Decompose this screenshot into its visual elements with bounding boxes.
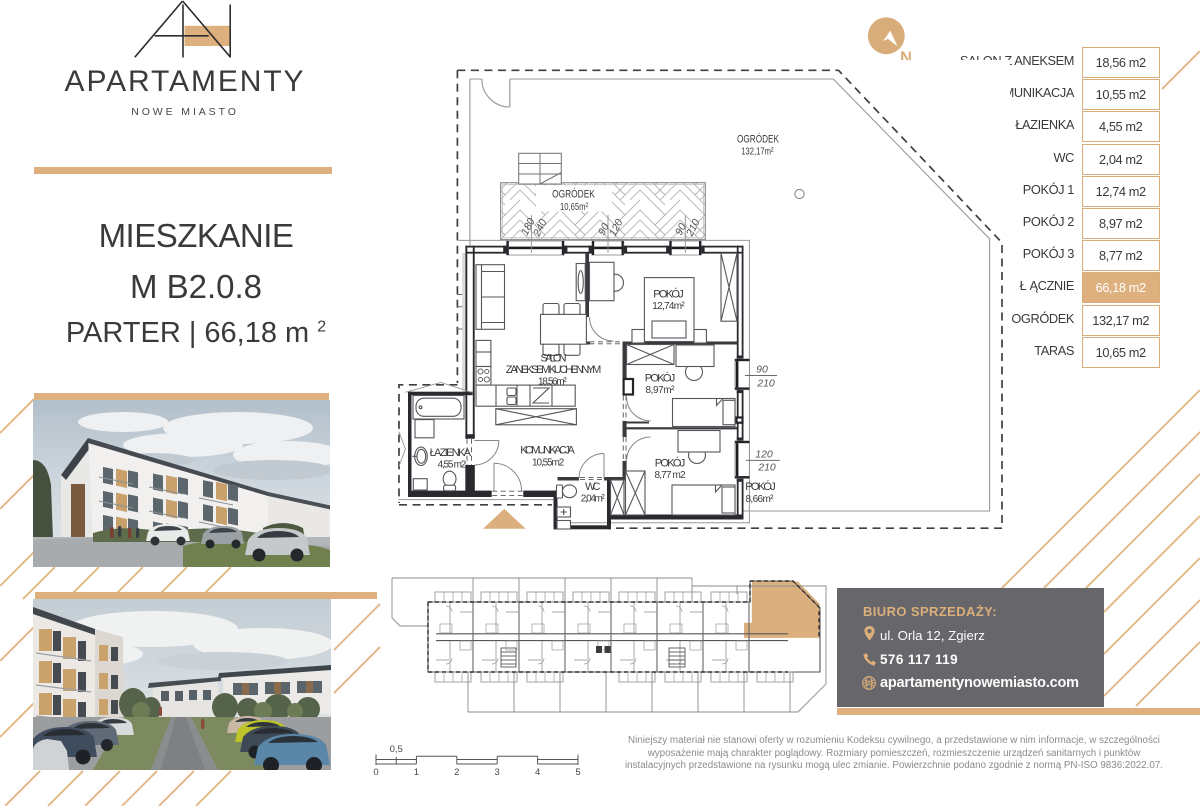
svg-text:3: 3 <box>495 767 500 778</box>
svg-text:10,55m2: 10,55m2 <box>532 458 565 469</box>
svg-text:120: 120 <box>755 449 773 461</box>
svg-text:ŁAZIENKA: ŁAZIENKA <box>430 447 472 459</box>
svg-text:1: 1 <box>414 767 419 778</box>
svg-text:5: 5 <box>575 767 580 778</box>
svg-text:POKÓJ: POKÓJ <box>745 480 776 493</box>
svg-text:0: 0 <box>373 767 378 778</box>
svg-text:210: 210 <box>756 378 775 390</box>
svg-text:10,65m²: 10,65m² <box>560 202 589 213</box>
svg-text:4: 4 <box>535 767 540 778</box>
svg-text:KOMUNIKACJA: KOMUNIKACJA <box>520 445 575 457</box>
svg-text:Z ANEKSEM KUCHENNYM: Z ANEKSEM KUCHENNYM <box>506 364 602 376</box>
svg-text:0,5: 0,5 <box>390 744 403 755</box>
svg-text:4,55 m2: 4,55 m2 <box>438 460 467 471</box>
svg-text:POKÓJ: POKÓJ <box>655 457 686 470</box>
svg-text:WC: WC <box>585 481 601 493</box>
svg-text:POKÓJ: POKÓJ <box>653 288 684 301</box>
svg-text:90: 90 <box>756 364 768 376</box>
svg-text:8,66m²: 8,66m² <box>746 494 775 505</box>
svg-text:2: 2 <box>454 767 459 778</box>
svg-text:POKÓJ: POKÓJ <box>645 372 676 385</box>
svg-text:OGRÓDEK: OGRÓDEK <box>552 188 595 201</box>
svg-text:12,74m²: 12,74m² <box>652 301 685 312</box>
svg-text:SALON: SALON <box>540 353 566 365</box>
svg-text:18,56m²: 18,56m² <box>538 377 567 388</box>
svg-text:2,04m²: 2,04m² <box>581 494 606 505</box>
svg-text:8,77 m2: 8,77 m2 <box>655 470 686 481</box>
svg-text:8,97m²: 8,97m² <box>646 385 676 396</box>
svg-text:OGRÓDEK: OGRÓDEK <box>737 133 779 146</box>
svg-text:210: 210 <box>757 462 776 474</box>
svg-text:132,17m²: 132,17m² <box>741 147 774 158</box>
